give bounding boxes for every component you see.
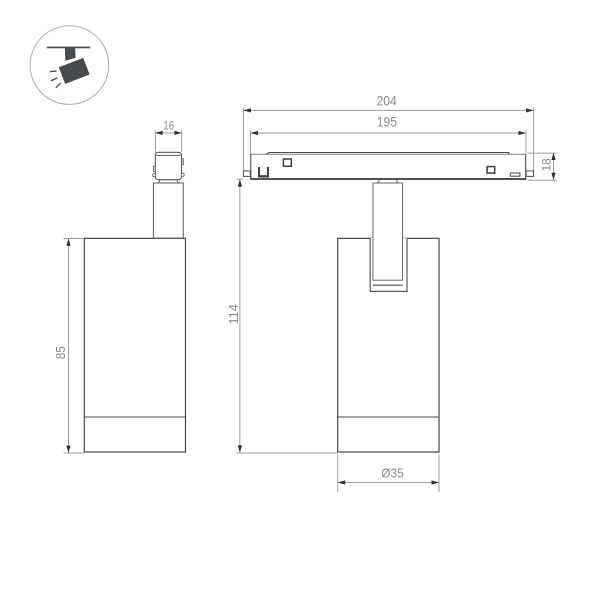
svg-text:Ø35: Ø35 (381, 465, 404, 480)
svg-text:18: 18 (541, 158, 553, 171)
svg-text:85: 85 (53, 346, 68, 359)
svg-text:195: 195 (377, 114, 397, 130)
svg-text:16: 16 (163, 119, 174, 133)
svg-text:114: 114 (226, 304, 241, 324)
svg-text:204: 204 (377, 93, 397, 109)
